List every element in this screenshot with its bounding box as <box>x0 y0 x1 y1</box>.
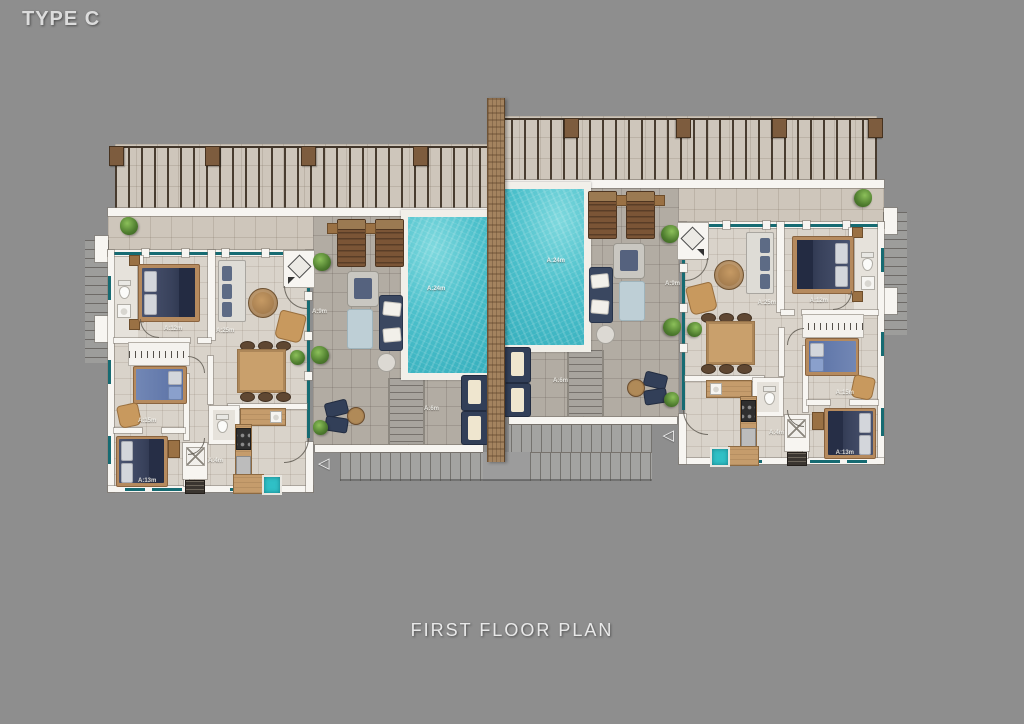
pergola-post <box>109 146 124 166</box>
wardrobe <box>128 342 190 366</box>
outdoor-armchair <box>613 243 645 279</box>
room-label-terrace: A:9m <box>665 281 680 287</box>
outdoor-armchair <box>347 271 379 307</box>
pergola-post <box>772 118 787 138</box>
stair-direction-arrow: ◁ <box>662 428 674 443</box>
bedside-table <box>812 412 824 430</box>
dining-table <box>706 321 755 365</box>
entry-door-marker <box>283 250 315 288</box>
window-mullion <box>222 249 229 257</box>
window-glass-bottom <box>810 460 840 463</box>
window-mullion <box>723 221 730 229</box>
plant <box>661 225 679 243</box>
window-mullion <box>262 249 269 257</box>
kitchen-sink <box>710 383 722 395</box>
apartment-unit-right: ◁ A:12m A:25m A:15m A:13m A:4m A:9m A:24… <box>496 72 912 492</box>
dining-chair <box>701 364 716 374</box>
window-mullion <box>305 332 312 340</box>
round-side-table <box>596 325 615 344</box>
room-label-living-room: A:25m <box>758 300 776 306</box>
terrace-parapet-wall <box>315 445 483 452</box>
toilet <box>216 414 229 433</box>
round-wood-table <box>627 379 645 397</box>
window-mullion <box>680 344 687 352</box>
outdoor-rug <box>347 309 373 349</box>
window-glass-left <box>881 408 884 436</box>
lower-stair-flight <box>340 452 483 481</box>
plant <box>120 217 138 235</box>
pool-water <box>408 217 491 373</box>
plant <box>313 253 331 271</box>
exterior-wall-stub <box>884 208 897 234</box>
turquoise-basin <box>262 475 282 495</box>
entry-door-marker <box>677 222 709 260</box>
room-label-master-bedroom: A:12m <box>810 298 828 304</box>
bedroom2-bed <box>133 366 187 404</box>
room-label-pool: A:24m <box>427 286 445 292</box>
plant <box>854 189 872 207</box>
room-label-bedroom-3: A:13m <box>138 478 156 484</box>
sun-lounger <box>337 219 366 267</box>
fridge <box>741 428 756 447</box>
room-label-bedroom-2: A:15m <box>138 418 156 424</box>
window-glass-left <box>108 436 111 464</box>
room-label-pool: A:24m <box>547 258 565 264</box>
plant <box>313 420 328 435</box>
round-side-table <box>377 353 396 372</box>
interior-wall <box>208 250 215 340</box>
kitchen-counter <box>233 474 264 494</box>
stove <box>741 400 756 422</box>
window-mullion <box>803 221 810 229</box>
side-table <box>327 223 338 234</box>
toilet <box>861 252 874 271</box>
window-glass-left <box>108 360 111 384</box>
floor-plan-caption: FIRST FLOOR PLAN <box>0 620 1024 641</box>
room-label-terrace: A:9m <box>312 309 327 315</box>
pergola-post <box>413 146 428 166</box>
pool-sunbed <box>461 375 489 411</box>
apartment-unit-left: ◁ A:12m A:25m A:15m A:13m A:4m A:9m A:24… <box>80 100 496 520</box>
turquoise-basin <box>710 447 730 467</box>
sofa <box>746 232 774 294</box>
kitchen-counter <box>728 446 759 466</box>
plant <box>664 392 679 407</box>
interior-wall <box>850 400 878 405</box>
pool-water <box>501 189 584 345</box>
plant <box>311 346 329 364</box>
floor-plan-canvas: TYPE C <box>0 0 1024 724</box>
exterior-wall-stub <box>884 288 897 314</box>
room-label-bedroom-3: A:13m <box>836 450 854 456</box>
room-label-lower-terrace: A:6m <box>553 378 568 384</box>
dining-chair <box>276 392 291 402</box>
window-glass-bottom <box>152 488 182 491</box>
interior-wall <box>198 338 211 343</box>
window-mullion <box>680 304 687 312</box>
sun-lounger <box>375 219 404 267</box>
daybed <box>589 267 613 323</box>
dining-chair <box>737 364 752 374</box>
dining-chair <box>240 392 255 402</box>
window-mullion <box>763 221 770 229</box>
terrace-steps <box>388 378 425 444</box>
stair-railing-line <box>340 479 652 481</box>
room-label-bedroom-2: A:15m <box>836 390 854 396</box>
interior-wall <box>777 222 784 312</box>
room-label-hallway: A:4m <box>208 458 223 464</box>
lower-stair-flight-extension <box>530 452 652 481</box>
pergola-post <box>205 146 220 166</box>
bathroom-sink <box>861 276 875 290</box>
coffee-table <box>248 288 278 318</box>
plant <box>290 350 305 365</box>
interior-wall <box>208 356 213 404</box>
room-label-master-bedroom: A:12m <box>164 326 182 332</box>
exterior-wall-stub <box>95 236 108 262</box>
side-table <box>365 223 376 234</box>
window-mullion <box>305 372 312 380</box>
interior-wall <box>162 428 185 433</box>
bedside-table <box>168 440 180 458</box>
interior-wall <box>807 400 830 405</box>
pergola-post <box>564 118 579 138</box>
window-glass-left <box>881 332 884 356</box>
toilet <box>763 386 776 405</box>
interior-wall <box>114 428 142 433</box>
daybed <box>379 295 403 351</box>
laundry-cabinet <box>185 480 205 494</box>
pergola-post <box>868 118 883 138</box>
interior-wall <box>779 328 784 376</box>
pergola-post <box>301 146 316 166</box>
round-wood-table <box>347 407 365 425</box>
plant <box>663 318 681 336</box>
terrace-steps <box>567 350 604 416</box>
laundry-cabinet <box>787 452 807 466</box>
pergola-post <box>676 118 691 138</box>
sun-lounger <box>626 191 655 239</box>
pool-sunbed <box>503 347 531 383</box>
lower-stair-flight <box>509 424 652 453</box>
wood-privacy-divider <box>487 98 505 462</box>
window-glass-bottom <box>847 460 867 463</box>
sun-lounger <box>588 191 617 239</box>
master-bed <box>138 264 200 322</box>
outdoor-rug <box>619 281 645 321</box>
wardrobe <box>802 314 864 338</box>
side-table <box>654 195 665 206</box>
terrace-parapet-wall <box>509 417 677 424</box>
dining-table <box>237 349 286 393</box>
window-mullion <box>142 249 149 257</box>
coffee-table <box>714 260 744 290</box>
plan-type-title: TYPE C <box>22 8 100 31</box>
toilet <box>118 280 131 299</box>
interior-wall <box>781 310 794 315</box>
sofa <box>218 260 246 322</box>
exterior-wall-stub <box>95 316 108 342</box>
dining-chair <box>719 364 734 374</box>
bedroom2-bed <box>805 338 859 376</box>
room-label-living-room: A:25m <box>216 328 234 334</box>
dining-chair <box>258 392 273 402</box>
window-glass-left <box>108 276 111 300</box>
kitchen-sink <box>270 411 282 423</box>
room-label-hallway: A:4m <box>769 430 784 436</box>
stove <box>236 428 251 450</box>
side-table <box>616 195 627 206</box>
bathroom-sink <box>117 304 131 318</box>
master-bed <box>792 236 854 294</box>
pool-sunbed <box>503 383 531 417</box>
apartment-right-wall <box>306 442 313 492</box>
pool-sunbed <box>461 411 489 445</box>
fridge <box>236 456 251 475</box>
window-glass-left <box>881 248 884 272</box>
room-label-lower-terrace: A:6m <box>424 406 439 412</box>
bedroom-armchair <box>116 402 142 429</box>
plant <box>687 322 702 337</box>
window-glass-bottom <box>125 488 145 491</box>
stair-direction-arrow: ◁ <box>318 456 330 471</box>
window-mullion <box>182 249 189 257</box>
